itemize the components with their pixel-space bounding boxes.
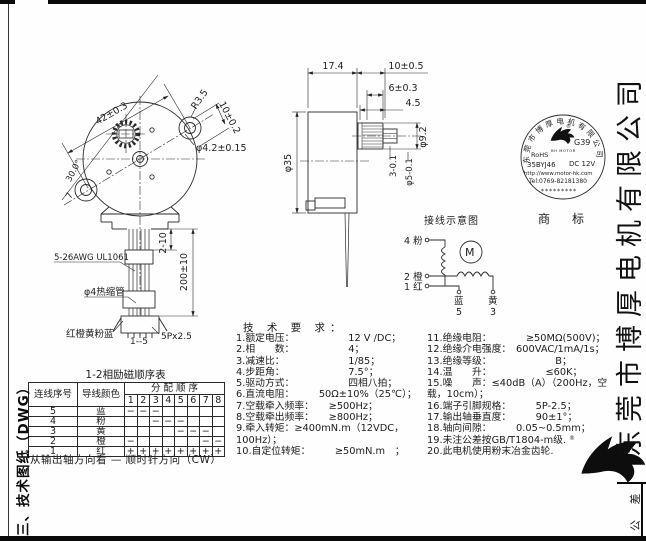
col-header-step: 4 [162,395,175,407]
tech-item: 15.噪 声：≤40dB（A）（200Hz，空载，10cm）； [427,378,619,401]
table-row: 4粉−−− [29,417,225,427]
dim-label-35: φ35 [283,154,294,172]
small-hole [150,128,154,132]
tech-requirements-right: 11.绝缘电阻： ≥50MΩ(500V)；12.绝缘介电强度： 600VAC/1… [427,333,619,457]
cell-step-mark [150,437,163,447]
terminal-label-1: 1 红 [404,281,423,293]
tech-item: 7.空载牵入频率： ≥500Hz； [236,401,432,412]
wiring-diagram: M 4 粉 2 橙 1 红 蓝 5 黄 3 [404,235,498,318]
dim-label-hole: φ4.2±0.15 [196,143,247,154]
connector [113,316,167,338]
cell-step-mark: − [150,417,163,427]
terminal [491,290,495,294]
tech-item: 2.相 数： 4； [236,344,432,355]
cell-step-mark: − [125,437,138,447]
cell-step-mark [200,407,213,417]
cell-step-mark: − [200,427,213,437]
cell-step-mark [150,427,163,437]
terminal-number-3: 3 [490,307,496,318]
sidebar-section-label: 三、技术图纸（DWG） [12,380,32,536]
trademark-stamp: 东莞市博厚电机有限公司 ® G39 BH MOTOR RoHS 35BYJ46 … [521,115,605,199]
dim-label-3: 3-0.1 [389,155,399,177]
mounting-ear [75,179,97,201]
small-hole [107,170,111,174]
cell-step-mark [162,427,175,437]
coil-2 [457,272,489,276]
sequence-table: 连线序号导线颜色分 配 顺 序12345678 5蓝−−−4粉−−−3黄−−−2… [28,382,225,457]
cell-step-mark: − [125,407,138,417]
tech-item: 10.自定位转矩： ≥50mN.m ； [236,446,432,457]
terminal [425,284,429,288]
cell-wire-color: 黄 [78,427,125,437]
tech-requirements-left: 1.额定电压： 12 V /DC；2.相 数： 4；3.减速比： 1/85；4.… [236,333,432,457]
col-header-wire-no: 连线序号 [29,383,78,407]
wiring-title: 接线示意图 [424,212,479,227]
stamp-voltage: DC 12V [569,160,595,168]
cell-wire-color: 蓝 [78,407,125,417]
dim-label-6: 6±0.3 [388,83,417,94]
terminal-number-5: 5 [456,307,462,318]
stamp-url: http://www.motor-hk.com [524,171,593,177]
wire-colors-label: 红橙黄粉蓝 [66,328,114,340]
terminal [425,238,429,242]
tech-item: 14.温 升： ≤60K； [427,367,619,378]
dim-label-45: 4.5 [405,98,420,109]
cell-step-mark [125,427,138,437]
dim-label-5: φ5-0.1 [405,158,415,186]
cell-step-mark [187,407,200,417]
cell-step-mark [162,407,175,417]
connector-label: 5Px2.5 [161,332,192,342]
cell-step-mark [200,417,213,427]
dim-label-7: 7 [64,191,76,201]
table-row: 5蓝−−− [29,407,225,417]
tech-item: 5.驱动方式： 四相八拍； [236,378,432,389]
mounting-hole [81,185,92,196]
motor-letter: M [465,246,475,259]
stamp-tel: Tel:0769-82181380 [528,178,587,185]
dim-label-10: 10±0.2 [216,100,242,136]
cell-step-mark: − [150,407,163,417]
tech-item: 19.未注公差按GB/T1804-m级. [427,435,619,446]
cell-wire-no: 3 [29,427,78,437]
cell-step-mark [187,437,200,447]
side-connector [306,198,349,287]
wire-pink [429,240,445,247]
rotation-note: 从输出轴方向看 — 顺时针方向（CW） [30,452,250,467]
table-row: 2橙−−− [29,437,225,447]
shrink-tube-band [123,291,155,308]
pin-range-label: 1--5 [130,337,148,347]
wire-red [429,286,459,290]
col-header-step: 8 [212,395,225,407]
cell-step-mark: − [200,437,213,447]
col-header-step: 2 [137,395,150,407]
cell-wire-no: 5 [29,407,78,417]
dim-label-92: φ9.2 [418,126,429,147]
tech-item: 8.空载牵出频率： ≥800Hz； [236,412,432,423]
stamp-registered-mark: ® [566,123,571,130]
cell-step-mark [162,437,175,447]
col-header-step: 7 [200,395,213,407]
table-row: 3黄−−− [29,427,225,437]
cell-step-mark: − [187,427,200,437]
side-view: 17.4 10±0.5 6±0.3 4.5 φ9.2 3-0.1 φ5-0.1 … [283,61,429,287]
col-header-sequence: 分 配 顺 序 [125,383,225,395]
col-header-step: 1 [125,395,138,407]
cell-step-mark [212,407,225,417]
sequence-table-body: 5蓝−−−4粉−−−3黄−−−2橙−−−1红++++++++ [29,407,225,457]
tech-item: 4.步距角： 7.5°； [236,367,432,378]
cell-wire-no: 2 [29,437,78,447]
cell-wire-color: 粉 [78,417,125,427]
trademark-caption: 商 标 [538,210,589,227]
cell-step-mark [125,417,138,427]
sequence-table-head: 连线序号导线颜色分 配 顺 序12345678 [29,383,225,407]
dim-label-10-05: 10±0.5 [388,61,423,72]
front-view: 42±0.3 R3.5 10±0.2 φ4.2±0.15 30.0° 7 5-2… [54,75,247,347]
dim-label-200: 200±10 [179,253,190,291]
tech-item: 11.绝缘电阻： ≥50MΩ(500V)； [427,333,619,344]
cell-step-mark [137,427,150,437]
tech-item: 13.绝缘等级： B； [427,356,619,367]
tech-item: 3.减速比： 1/85； [236,356,432,367]
cell-step-mark [187,417,200,427]
wire-spec-label: 5-26AWG UL1061 [54,253,129,263]
tech-item: 17.输出轴垂直度： 90±1°； [427,412,619,423]
cell-step-mark: − [175,417,188,427]
terminal-label-blue: 蓝 [454,295,464,307]
cell-step-mark [212,417,225,427]
stamp-rohs: RoHS [531,151,548,159]
stamp-model: 35BYJ46 [527,161,556,169]
terminal-label-4: 4 粉 [404,235,423,247]
col-header-wire-color: 导线颜色 [78,383,125,407]
tech-item: 18.轴向间隙： 0.05~0.5mm； [427,423,619,434]
coil-1 [442,247,446,275]
dim-label-42: 42±0.3 [94,100,130,127]
cell-step-mark [212,427,225,437]
col-header-step: 6 [187,395,200,407]
wire-yellow [489,276,493,290]
shrink-tube-band [125,250,153,264]
tech-item: 12.绝缘介电强度： 600VAC/1mA/1s； [427,344,619,355]
cell-step-mark: − [162,417,175,427]
tech-item: 16.端子引脚规格： 5P-2.5； [427,401,619,412]
cell-step-mark: − [212,437,225,447]
cell-step-mark [175,437,188,447]
cell-step-mark [175,407,188,417]
terminal [425,274,429,278]
sequence-table-title: 1-2相励磁顺序表 [28,367,223,382]
tech-item: 9.牵入转矩：≥400mN.m（12VDC，100Hz）； [236,423,432,446]
stamp-code: G39 [574,138,590,147]
terminal [457,290,461,294]
cell-step-mark [137,437,150,447]
tolerance-cell-label: 公 差 [627,488,643,532]
cell-step-mark [137,417,150,427]
dim-label-r35: R3.5 [189,88,210,112]
stamp-stars: ********* [541,188,577,195]
stamp-brand: BH MOTOR [551,148,576,153]
centerlines [300,136,422,161]
cell-step-mark: − [175,427,188,437]
cell-wire-no: 4 [29,417,78,427]
col-header-step: 5 [175,395,188,407]
cell-step-mark: − [137,407,150,417]
tech-item: 1.额定电压： 12 V /DC； [236,333,432,344]
col-header-step: 3 [150,395,163,407]
tech-item: 20.此电机使用粉末冶金齿轮. [427,446,619,457]
dim-label-2-10: 2-10 [158,232,169,254]
small-hole [150,175,154,179]
dim-label-174: 17.4 [322,61,343,72]
cell-wire-color: 橙 [78,437,125,447]
tech-item: 6.直流电阻： 50Ω±10%（25℃）； [236,389,432,400]
company-name-vertical: 东莞市博厚电机有限公司 [608,72,646,457]
drawing-sheet: 42±0.3 R3.5 10±0.2 φ4.2±0.15 30.0° 7 5-2… [0,0,646,541]
shrink-tube-label: φ4热缩管 [84,286,125,298]
terminal-label-yellow: 黄 [488,295,498,307]
